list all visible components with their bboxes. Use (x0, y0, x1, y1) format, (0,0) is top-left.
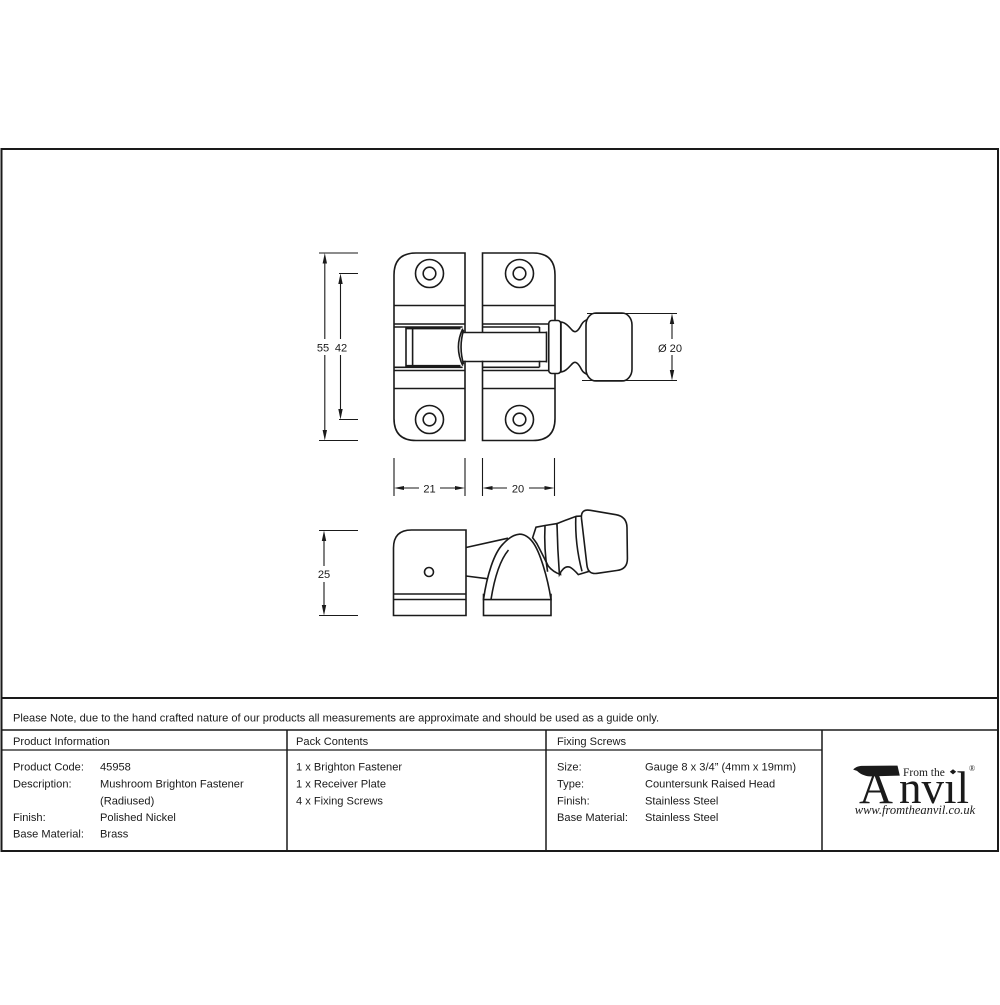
svg-text:4 x Fixing Screws: 4 x Fixing Screws (296, 796, 383, 808)
svg-text:Pack Contents: Pack Contents (296, 736, 369, 748)
svg-text:Product Code:: Product Code: (13, 762, 84, 774)
svg-text:Stainless Steel: Stainless Steel (645, 812, 718, 824)
svg-text:42: 42 (335, 343, 347, 355)
svg-text:Base Material:: Base Material: (13, 829, 84, 841)
svg-text:20: 20 (512, 484, 524, 496)
svg-text:45958: 45958 (100, 762, 131, 774)
svg-text:Mushroom Brighton Fastener: Mushroom Brighton Fastener (100, 779, 244, 791)
svg-text:1 x Receiver Plate: 1 x Receiver Plate (296, 779, 386, 791)
svg-text:Fixing Screws: Fixing Screws (557, 736, 626, 748)
svg-text:Polished Nickel: Polished Nickel (100, 812, 176, 824)
svg-text:Countersunk Raised Head: Countersunk Raised Head (645, 779, 775, 791)
svg-text:Ø 20: Ø 20 (658, 343, 682, 355)
svg-text:www.fromtheanvil.co.uk: www.fromtheanvil.co.uk (855, 803, 976, 817)
svg-text:21: 21 (423, 484, 435, 496)
svg-text:Description:: Description: (13, 779, 72, 791)
svg-text:Base Material:: Base Material: (557, 812, 628, 824)
svg-text:55: 55 (317, 343, 329, 355)
svg-text:Product Information: Product Information (13, 736, 110, 748)
svg-text:Type:: Type: (557, 779, 584, 791)
svg-text:(Radiused): (Radiused) (100, 796, 154, 808)
svg-text:25: 25 (318, 569, 330, 581)
svg-text:Gauge 8 x 3/4” (4mm x 19mm): Gauge 8 x 3/4” (4mm x 19mm) (645, 762, 796, 774)
svg-text:Brass: Brass (100, 829, 129, 841)
svg-text:From the: From the (903, 767, 945, 779)
svg-text:1 x Brighton Fastener: 1 x Brighton Fastener (296, 762, 402, 774)
svg-text:Finish:: Finish: (557, 796, 590, 808)
svg-text:Stainless Steel: Stainless Steel (645, 796, 718, 808)
svg-text:®: ® (969, 764, 975, 773)
svg-text:Finish:: Finish: (13, 812, 46, 824)
svg-text:Please Note, due to the hand c: Please Note, due to the hand crafted nat… (13, 713, 659, 725)
svg-text:Size:: Size: (557, 762, 582, 774)
